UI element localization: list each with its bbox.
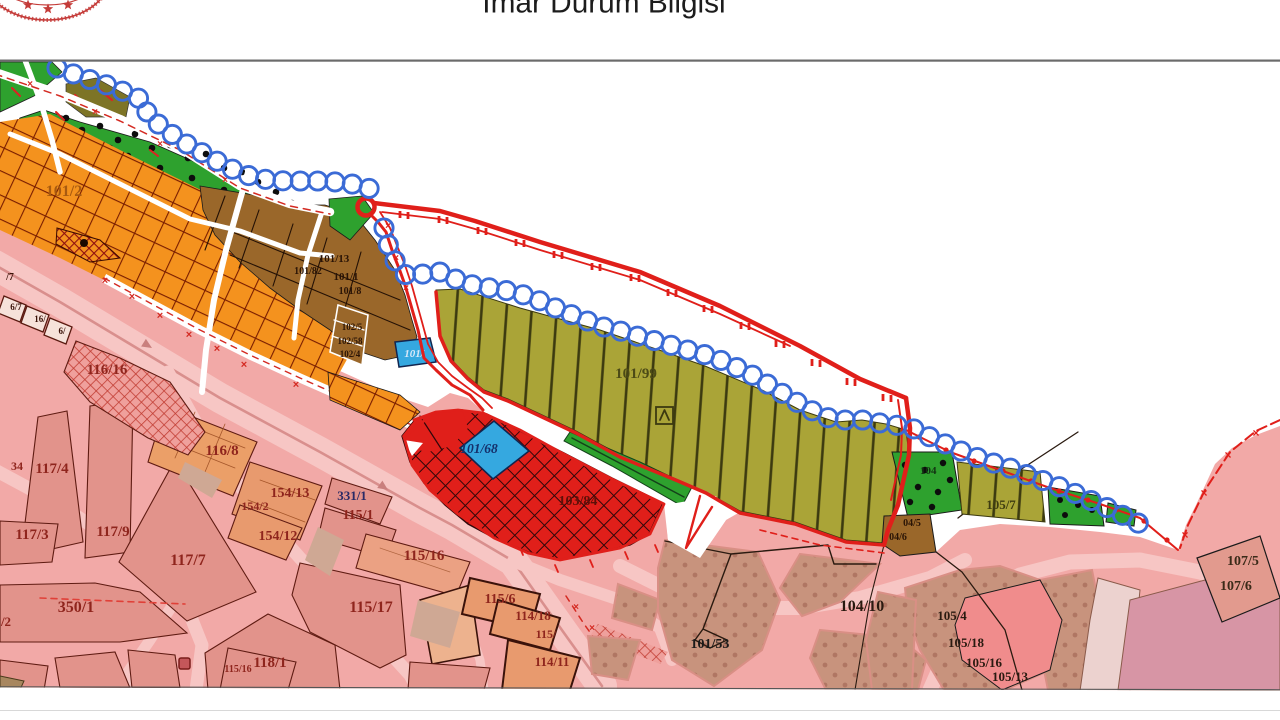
svg-text:×: × (1224, 448, 1231, 462)
svg-text:34: 34 (11, 459, 23, 473)
svg-text:154/2: 154/2 (241, 499, 268, 513)
svg-text:107/6: 107/6 (1220, 579, 1252, 594)
svg-text:114/18: 114/18 (515, 608, 551, 623)
svg-text:102/4: 102/4 (340, 349, 361, 359)
svg-text:102/58: 102/58 (337, 336, 363, 346)
svg-text:6/: 6/ (58, 326, 66, 336)
svg-text:105/4: 105/4 (937, 608, 967, 623)
svg-text:×: × (27, 79, 33, 90)
svg-text:×: × (157, 310, 163, 322)
svg-text:×: × (102, 275, 108, 287)
svg-text:101/82: 101/82 (294, 266, 322, 277)
svg-text:×: × (157, 139, 163, 150)
svg-text:117/7: 117/7 (170, 552, 206, 569)
svg-text:116/8: 116/8 (205, 443, 238, 459)
svg-text:115/16: 115/16 (224, 664, 251, 675)
svg-text:16/: 16/ (34, 314, 46, 324)
svg-text:115/6: 115/6 (484, 592, 515, 607)
svg-text:6/7: 6/7 (10, 302, 22, 312)
svg-text:103/84: 103/84 (559, 494, 598, 509)
svg-text:×: × (186, 329, 192, 341)
svg-text:/7: /7 (5, 272, 14, 283)
svg-text:101/68: 101/68 (460, 441, 498, 456)
svg-text:101/13: 101/13 (319, 253, 350, 265)
svg-text:×: × (293, 379, 299, 391)
svg-text:105/13: 105/13 (992, 669, 1029, 684)
svg-text:115/1: 115/1 (342, 508, 373, 523)
svg-text:101/99: 101/99 (615, 366, 657, 382)
svg-text:116/16: 116/16 (87, 362, 128, 378)
svg-text:×: × (1181, 528, 1188, 542)
svg-text:105/7: 105/7 (986, 497, 1016, 512)
svg-text:105/16: 105/16 (966, 655, 1003, 670)
svg-text:104: 104 (920, 465, 937, 477)
svg-text:105/18: 105/18 (948, 635, 985, 650)
svg-text:115/16: 115/16 (404, 548, 445, 564)
svg-text:154/13: 154/13 (271, 486, 310, 501)
svg-text:04/6: 04/6 (889, 532, 907, 543)
svg-text:102/5: 102/5 (342, 322, 363, 332)
svg-text:117/3: 117/3 (15, 527, 48, 543)
svg-text:×: × (129, 291, 135, 303)
svg-text:115/17: 115/17 (349, 599, 393, 616)
svg-text:101/53: 101/53 (691, 637, 730, 652)
svg-text:118/1: 118/1 (253, 655, 286, 671)
svg-text:×: × (573, 602, 579, 613)
svg-text:154/12: 154/12 (259, 529, 298, 544)
svg-text:117/4: 117/4 (35, 461, 69, 477)
svg-text:350/1: 350/1 (58, 599, 94, 616)
svg-text:×: × (1200, 486, 1207, 500)
svg-text:×: × (393, 253, 399, 264)
svg-text:114/11: 114/11 (535, 654, 570, 669)
svg-text:/2: /2 (0, 614, 11, 629)
svg-text:04/5: 04/5 (903, 518, 921, 529)
svg-text:İmar Durum Bilgisi: İmar Durum Bilgisi (482, 0, 725, 20)
svg-text:115/: 115/ (536, 627, 557, 641)
svg-text:×: × (92, 107, 98, 118)
svg-text:117/9: 117/9 (96, 524, 129, 540)
svg-text:101/8: 101/8 (339, 286, 362, 297)
svg-text:×: × (214, 343, 220, 355)
svg-text:×: × (589, 623, 595, 634)
svg-text:101/2: 101/2 (46, 183, 82, 200)
svg-text:×: × (241, 359, 247, 371)
svg-text:331/1: 331/1 (337, 488, 367, 503)
svg-text:×: × (1252, 426, 1259, 440)
svg-text:104/10: 104/10 (840, 598, 884, 615)
svg-text:107/5: 107/5 (1227, 554, 1259, 569)
svg-text:101/1: 101/1 (333, 271, 358, 283)
